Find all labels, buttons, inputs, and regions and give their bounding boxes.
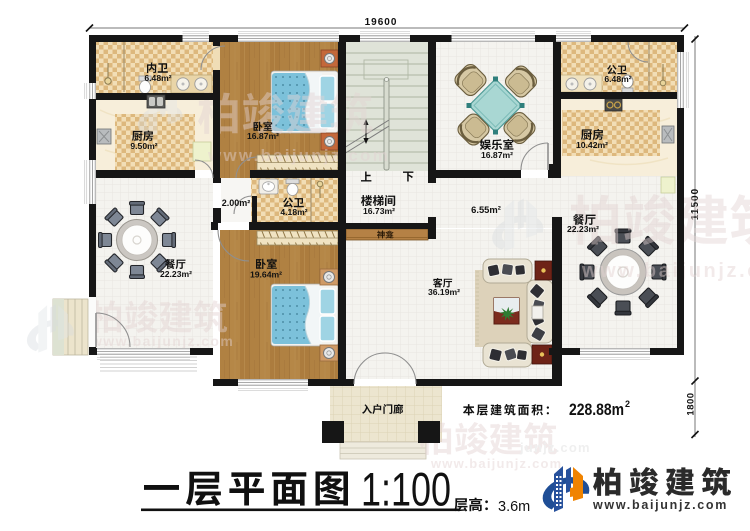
svg-text:6.48m²: 6.48m² [604,74,631,84]
svg-text:2.00m²: 2.00m² [222,198,251,208]
svg-text:www.baijunjz.com: www.baijunjz.com [592,498,728,512]
svg-text:1800: 1800 [686,392,697,415]
svg-text:6.48m²: 6.48m² [144,73,171,83]
svg-text:junjz.com: junjz.com [519,440,591,455]
svg-text:1:100: 1:100 [361,463,451,516]
svg-text:3.6m: 3.6m [498,499,530,515]
svg-text:9.50m²: 9.50m² [130,141,157,151]
svg-text:228.88m: 228.88m [569,400,624,419]
svg-text:www.baijunjz.com: www.baijunjz.com [207,146,390,165]
svg-text:22.23m²: 22.23m² [160,269,192,279]
svg-text:2: 2 [625,399,630,409]
svg-text:4.18m²: 4.18m² [280,207,307,217]
svg-text:16.73m²: 16.73m² [363,206,395,216]
svg-text:19.64m²: 19.64m² [250,270,282,280]
svg-text:6.55m²: 6.55m² [471,204,501,215]
svg-text:10.42m²: 10.42m² [576,140,608,150]
svg-text:36.19m²: 36.19m² [428,287,460,297]
svg-text:16.87m²: 16.87m² [481,150,513,160]
svg-text:www.baijunjz.com: www.baijunjz.com [90,333,234,349]
svg-text:19600: 19600 [365,17,398,28]
svg-text:22.23m²: 22.23m² [567,224,599,234]
svg-text:16.87m²: 16.87m² [247,131,279,141]
svg-text:www.baijunjz.com: www.baijunjz.com [581,260,750,282]
